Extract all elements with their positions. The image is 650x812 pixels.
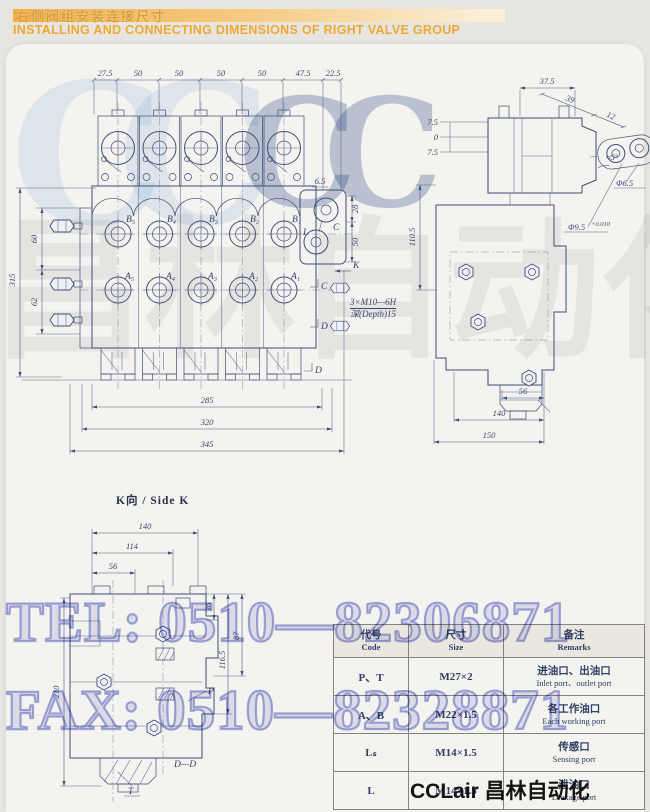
end-block-detail: C L 6.5 28 50	[300, 176, 360, 264]
dim-label: 37.5	[539, 76, 555, 86]
dim-label: 315	[7, 274, 17, 288]
remark-en: Sensing port	[507, 754, 641, 764]
cell-code: L	[334, 772, 409, 810]
dim-label: 0	[434, 132, 439, 142]
marker-d: D	[320, 322, 328, 332]
table-row: A、B M22×1.5 各工作油口 Each working port	[334, 696, 645, 734]
dia-label: Φ9.5	[568, 222, 585, 232]
port-label: B₄	[167, 215, 176, 225]
front-top-dims: 27.5 50 50 50 50 47.5 22.5	[92, 68, 343, 190]
k-view-drawing: 140 114 56 210 36 87 116.5 P D—D T	[56, 486, 366, 812]
dim-label: 116.5	[217, 651, 227, 670]
dim-label: 150	[483, 430, 497, 440]
port-label-l: L	[302, 228, 308, 238]
table-row: Lₛ M14×1.5 传感口 Sensing port	[334, 734, 645, 772]
brand-logo-text: CCLair 昌林自动化	[410, 775, 590, 805]
side-dims: 37.5 39 12 ≈5° Φ6.5 Φ9.5 +0.010 7.5 0 7.…	[407, 76, 646, 444]
dim-label: 210	[51, 685, 61, 699]
dim-label: 62	[29, 297, 39, 306]
header-size: 尺寸 Size	[409, 625, 504, 658]
dim-label: 36	[203, 602, 213, 612]
angle-label: ≈5°	[606, 152, 619, 162]
thread-note-line1: 3×M10—6H	[350, 297, 396, 309]
port-label: A₂	[248, 272, 259, 282]
k-side-dims: 210 36 87 116.5	[51, 594, 246, 786]
cell-remark: 各工作油口 Each working port	[504, 696, 645, 734]
side-body	[436, 193, 566, 419]
cell-remark: 进油口、出油口 Inlet port、outlet port	[504, 658, 645, 696]
dim-label: 50	[258, 68, 267, 78]
header-remarks-en: Remarks	[507, 642, 641, 652]
dim-label: 87	[231, 631, 241, 640]
dim-label: 320	[200, 417, 215, 427]
work-ports: B₅ B₄ B₃ B₂ B₁ A₅ A₄ A₃ A₂ A₁	[102, 215, 301, 306]
dia-label: Φ6.5	[616, 178, 633, 188]
port-label-c: C	[333, 223, 340, 233]
k-labels: P D—D T	[118, 687, 214, 797]
header-code-en: Code	[337, 642, 405, 652]
dim-label: 50	[350, 237, 360, 246]
front-bottom-dims: 285 320 345	[70, 270, 344, 454]
dim-label: 140	[493, 408, 507, 418]
remark-zh: 传感口	[507, 742, 641, 754]
front-view-drawing: B₅ B₄ B₃ B₂ B₁ A₅ A₄ A₃ A₂ A₁ C L 6.5	[4, 58, 372, 470]
header-remarks: 备注 Remarks	[504, 625, 645, 658]
dim-label: 285	[201, 395, 214, 405]
dim-label: 50	[217, 68, 226, 78]
remark-en: Inlet port、outlet port	[507, 678, 641, 688]
label-p: P	[207, 687, 214, 697]
label-t: T	[128, 787, 134, 797]
header-size-en: Size	[412, 642, 500, 652]
dim-label: 345	[200, 439, 214, 449]
cell-size: M22×1.5	[409, 696, 504, 734]
cell-size: M14×1.5	[409, 734, 504, 772]
port-label: A₄	[165, 272, 175, 282]
table-header-row: 代号 Code 尺寸 Size 备注 Remarks	[334, 625, 645, 658]
catalog-page: CC CC 昌林自动化 右侧阀组安装连接尺寸 INSTALLING AND CO…	[0, 0, 650, 812]
dia-tolerance: +0.010	[591, 221, 611, 228]
page-title-en: INSTALLING AND CONNECTING DIMENSIONS OF …	[13, 23, 460, 37]
header-code-zh: 代号	[337, 630, 405, 642]
port-label: A₅	[124, 272, 134, 282]
port-label: A₃	[207, 272, 217, 282]
cell-size: M27×2	[409, 658, 504, 696]
remark-en: Each working port	[507, 716, 641, 726]
marker-c: C	[321, 282, 328, 292]
dim-label: 47.5	[296, 68, 311, 78]
header-remarks-zh: 备注	[507, 630, 641, 642]
cell-code: P、T	[334, 658, 409, 696]
marker-d: D	[314, 366, 322, 376]
dim-label: 56	[519, 386, 528, 396]
dim-label: 28	[350, 204, 360, 213]
header-size-zh: 尺寸	[412, 630, 500, 642]
marker-k: K	[352, 261, 360, 271]
thread-note-line2: 深(Depth)15	[350, 309, 396, 319]
port-label: B₃	[209, 215, 218, 225]
dim-label: 56	[109, 561, 118, 571]
label-dd: D—D	[173, 760, 196, 770]
k-top-dims: 140 114 56	[92, 521, 198, 594]
dim-label: 114	[126, 541, 139, 551]
dim-label: 60	[29, 234, 39, 243]
remark-zh: 各工作油口	[507, 704, 641, 716]
dim-label: 50	[134, 68, 143, 78]
port-label: B₂	[250, 215, 260, 225]
dim-label: 27.5	[98, 68, 113, 78]
table-row: P、T M27×2 进油口、出油口 Inlet port、outlet port	[334, 658, 645, 696]
header-code: 代号 Code	[334, 625, 409, 658]
port-label: B₅	[126, 215, 135, 225]
cell-code: Lₛ	[334, 734, 409, 772]
cell-remark: 传感口 Sensing port	[504, 734, 645, 772]
dim-label: 110.5	[407, 228, 417, 247]
dim-label: 6.5	[315, 176, 326, 186]
side-view-drawing: 37.5 39 12 ≈5° Φ6.5 Φ9.5 +0.010 7.5 0 7.…	[392, 60, 650, 458]
dim-label: 7.5	[427, 117, 438, 127]
cell-code: A、B	[334, 696, 409, 734]
dim-label: 140	[139, 521, 153, 531]
dim-label: 50	[175, 68, 184, 78]
port-label: A₁	[290, 272, 300, 282]
dim-label: 7.5	[427, 147, 438, 157]
remark-zh: 进油口、出油口	[507, 666, 641, 678]
lever-joint	[588, 133, 650, 172]
dim-label: 22.5	[326, 68, 341, 78]
